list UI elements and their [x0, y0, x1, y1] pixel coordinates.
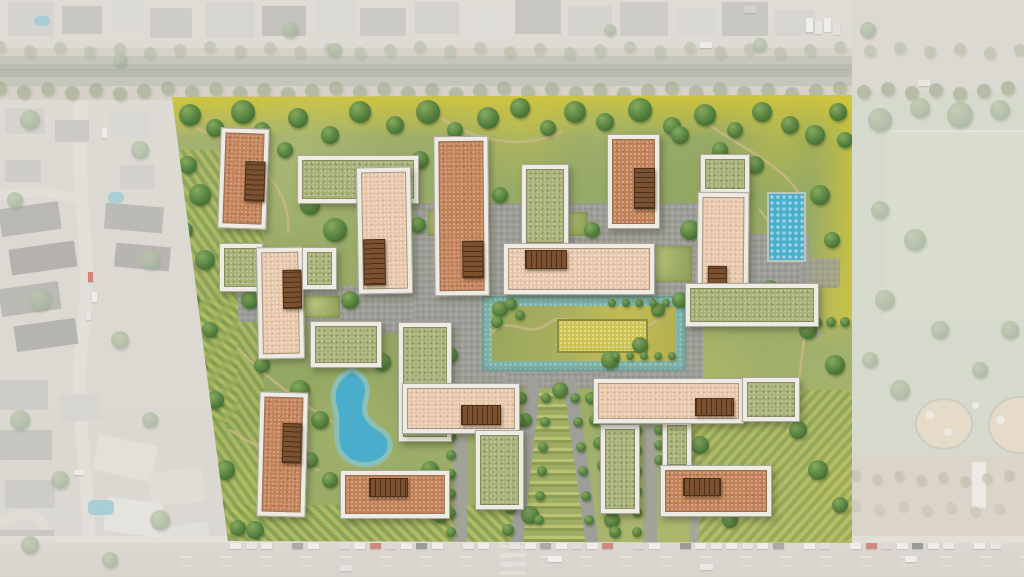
tree	[825, 355, 845, 375]
tree	[491, 316, 503, 328]
roof-deck	[244, 161, 265, 202]
roof-deck	[282, 423, 302, 463]
tree	[752, 102, 772, 122]
roof	[605, 429, 635, 509]
tree-row-tree	[662, 299, 670, 307]
roof-deck	[462, 241, 483, 278]
building-terracotta	[433, 136, 489, 296]
roof-deck	[525, 250, 567, 269]
tree-row-tree	[840, 317, 850, 327]
tree	[231, 100, 255, 124]
building-terracotta	[340, 470, 450, 519]
tree-row-tree	[534, 515, 544, 525]
building-terracotta	[607, 134, 660, 229]
tree	[628, 98, 652, 122]
tree	[277, 142, 293, 158]
tree	[584, 222, 600, 238]
tree-row-tree	[649, 299, 657, 307]
building-green-roof	[310, 321, 382, 368]
tree	[808, 460, 828, 480]
tree-row-tree	[540, 417, 550, 427]
tree	[632, 337, 648, 353]
lap-pool	[767, 192, 806, 262]
tree	[832, 497, 848, 513]
building-terracotta	[660, 465, 772, 517]
tree-row-tree	[584, 515, 594, 525]
tree	[505, 298, 517, 310]
roof-deck	[369, 478, 408, 497]
roof	[705, 159, 745, 189]
roof	[690, 288, 814, 322]
tree	[189, 184, 211, 206]
roof-deck	[363, 239, 386, 285]
tree	[596, 113, 614, 131]
tree-row-tree	[654, 352, 662, 360]
tree-row-tree	[635, 299, 643, 307]
tree	[410, 217, 426, 233]
roof	[747, 382, 795, 417]
roof-deck	[634, 168, 655, 209]
tree	[416, 100, 440, 124]
masterplan-site	[172, 95, 852, 543]
tree	[781, 116, 799, 134]
tree	[179, 156, 197, 174]
tree	[694, 104, 716, 126]
tree	[492, 187, 508, 203]
tree	[810, 185, 830, 205]
tree	[230, 520, 246, 536]
building-terracotta	[256, 391, 308, 517]
building-peach	[402, 383, 520, 434]
tree-row-tree	[668, 352, 676, 360]
roof	[526, 169, 564, 243]
tree	[837, 132, 853, 148]
roof-deck	[695, 398, 734, 416]
tree	[321, 126, 339, 144]
building-peach	[593, 378, 744, 424]
tree	[254, 357, 270, 373]
tree	[510, 98, 530, 118]
tree-row-tree	[608, 299, 616, 307]
tree	[349, 101, 371, 123]
tree-row-tree	[576, 442, 586, 452]
building-green-roof	[685, 283, 819, 327]
tree	[341, 291, 359, 309]
building-peach	[356, 167, 413, 295]
tree-row-tree	[541, 393, 551, 403]
tree	[195, 250, 215, 270]
tree-row-tree	[537, 466, 547, 476]
tree-row-tree	[446, 527, 456, 537]
tree-row-tree	[626, 352, 634, 360]
tree	[311, 411, 329, 429]
roof-deck	[282, 270, 302, 309]
tree	[691, 436, 709, 454]
building-green-roof	[700, 154, 750, 194]
tree-row-tree	[612, 352, 620, 360]
tree	[829, 103, 847, 121]
tree	[323, 218, 347, 242]
tree-row-tree	[622, 299, 630, 307]
tree	[824, 232, 840, 248]
tree-row-tree	[632, 527, 642, 537]
building-green-roof	[521, 164, 569, 248]
building-green-roof	[742, 377, 800, 422]
roof	[224, 248, 258, 287]
roof	[307, 252, 332, 285]
building-peach	[256, 247, 305, 360]
tree-row-tree	[826, 317, 836, 327]
kidney-pool	[333, 370, 390, 465]
tree	[202, 322, 218, 338]
tree-row-tree	[502, 524, 514, 536]
roof-deck	[683, 478, 721, 496]
roof	[480, 435, 519, 505]
tree	[552, 382, 568, 398]
building-green-roof	[302, 247, 337, 290]
building-green-roof	[600, 424, 640, 514]
building-green-roof	[662, 420, 692, 470]
tree	[805, 125, 825, 145]
tree	[179, 104, 201, 126]
tree-row-tree	[538, 442, 548, 452]
tree	[564, 101, 586, 123]
tree	[386, 116, 404, 134]
tree-row-tree	[535, 491, 545, 501]
roof	[315, 326, 377, 363]
tree-row-tree	[581, 491, 591, 501]
roof-deck	[461, 405, 501, 425]
tree	[671, 126, 689, 144]
tree-row-tree	[609, 526, 621, 538]
tree	[288, 108, 308, 128]
tree	[515, 310, 525, 320]
tree	[727, 122, 743, 138]
building-green-roof	[475, 430, 524, 510]
building-terracotta	[217, 127, 269, 230]
tree-row-tree	[640, 352, 648, 360]
site-plan-rendering	[0, 0, 1024, 577]
tree	[540, 120, 556, 136]
roof	[667, 425, 687, 465]
building-peach	[503, 243, 655, 295]
tree-row-tree	[570, 393, 580, 403]
tree	[322, 472, 338, 488]
tree	[477, 107, 499, 129]
tree	[246, 521, 264, 539]
tree	[789, 421, 807, 439]
